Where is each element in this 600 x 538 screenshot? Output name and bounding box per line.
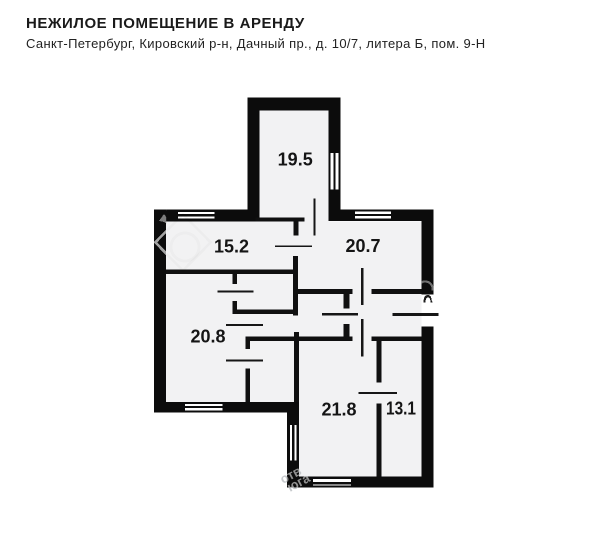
svg-text:21.8: 21.8	[321, 399, 356, 419]
svg-text:19.5: 19.5	[278, 150, 313, 170]
svg-text:15.2: 15.2	[214, 237, 249, 257]
svg-text:13.1: 13.1	[386, 399, 416, 419]
svg-text:20.7: 20.7	[345, 236, 380, 256]
svg-text:20.8: 20.8	[190, 327, 225, 347]
